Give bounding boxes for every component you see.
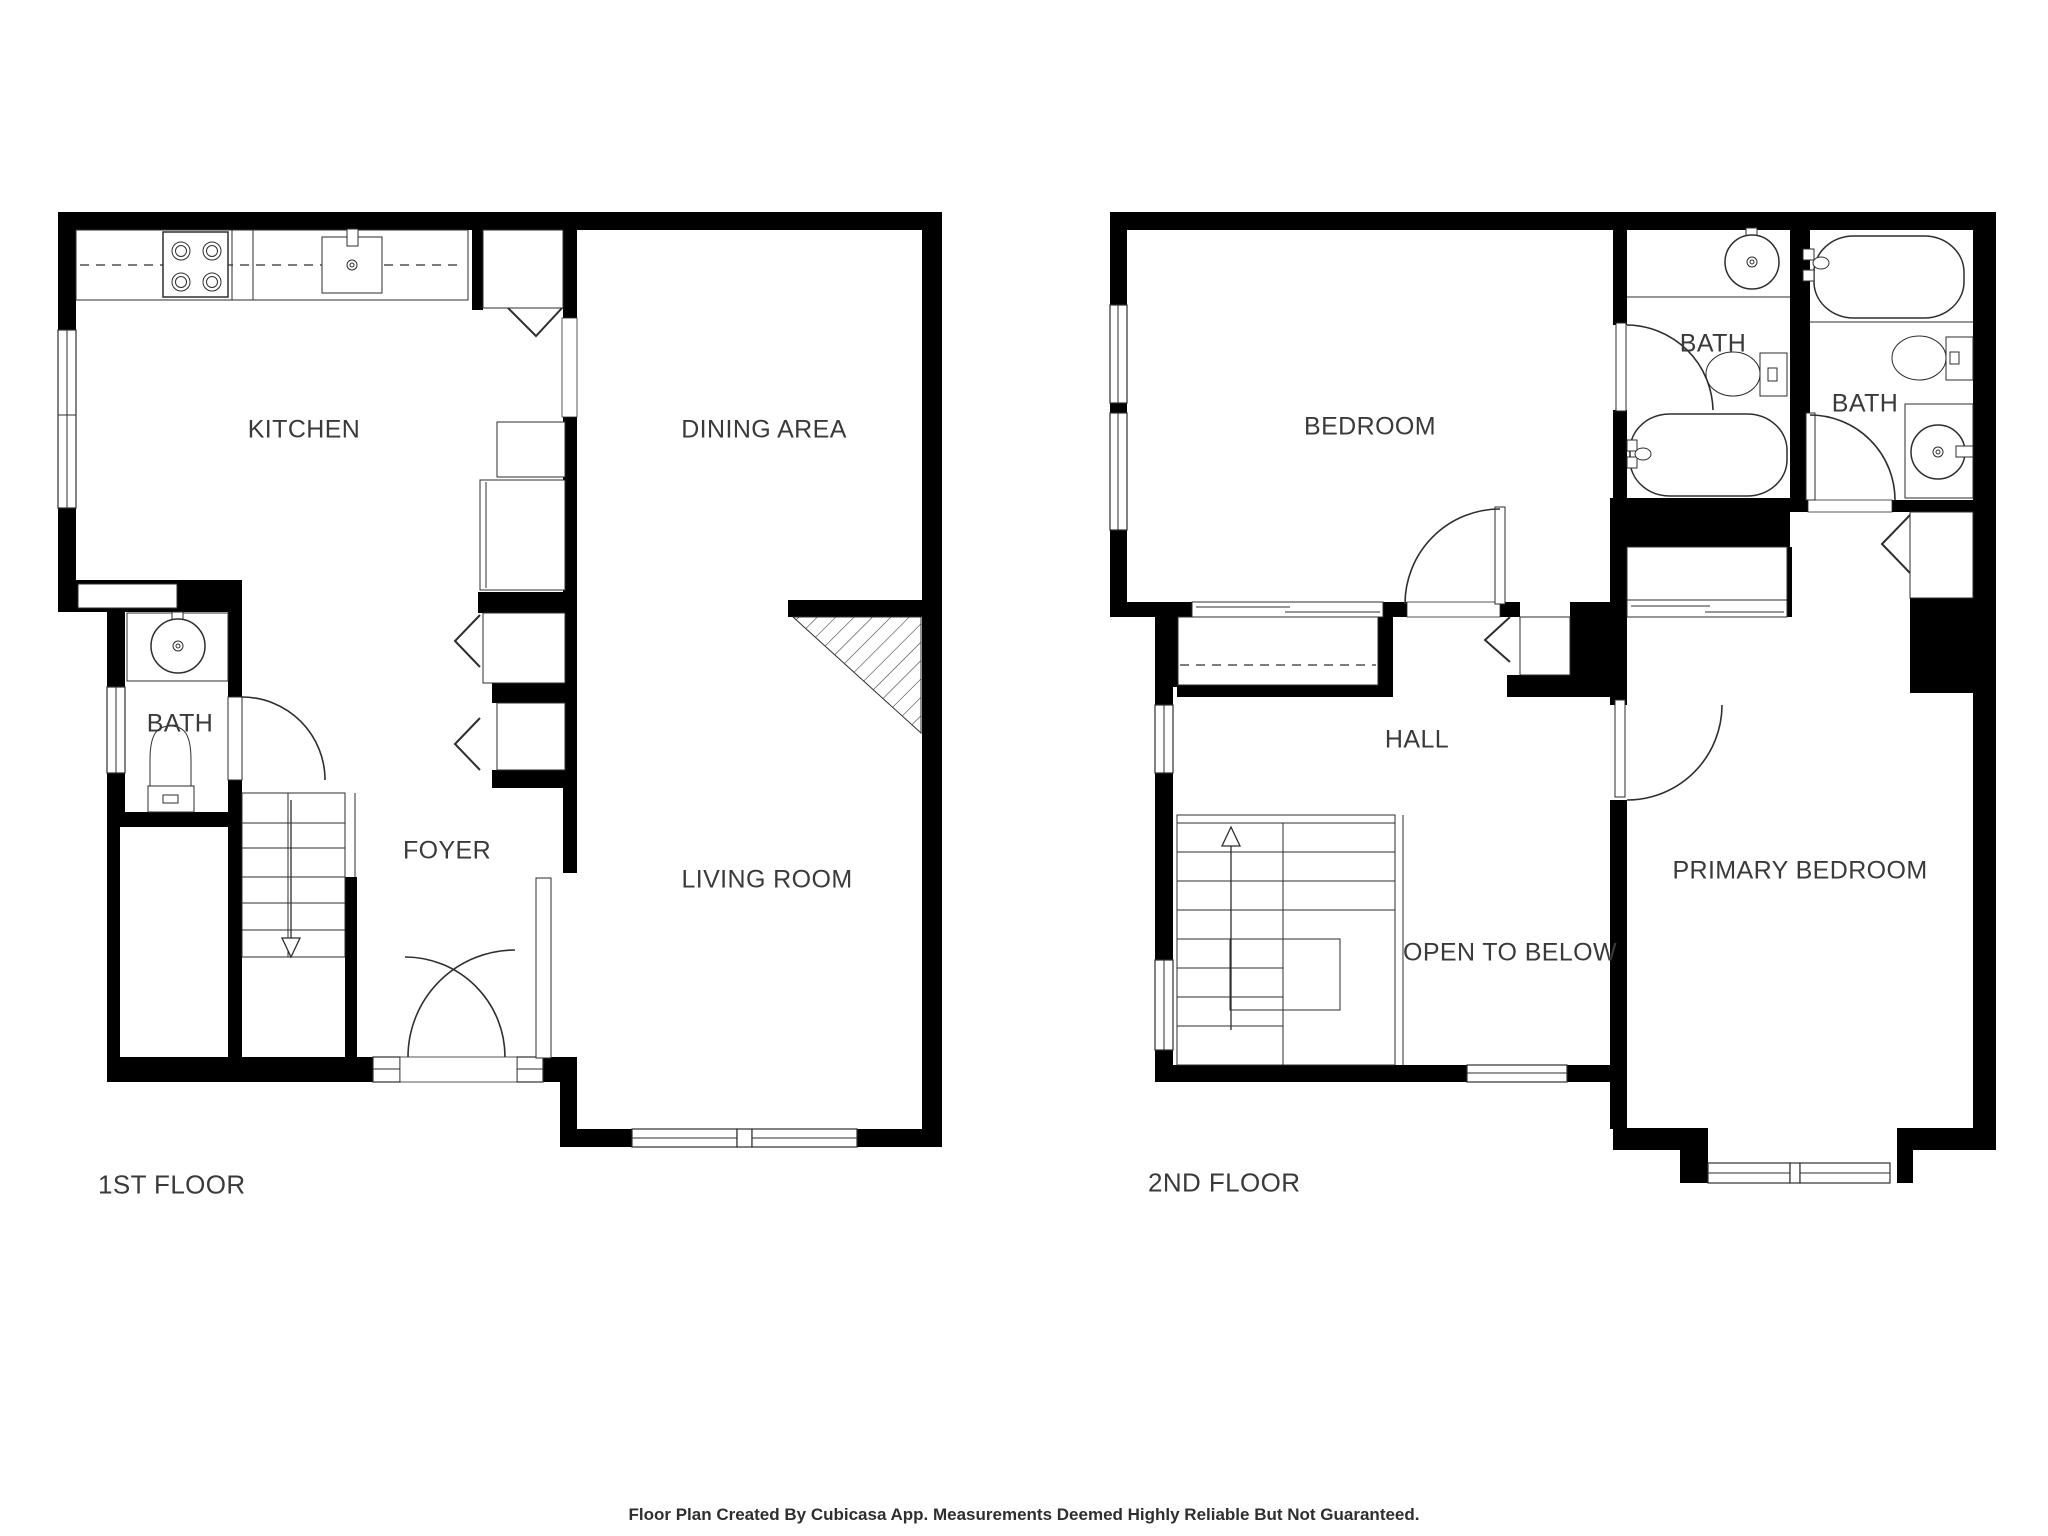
floorplan-page: KITCHEN DINING AREA BATH FOYER LIVING RO… (0, 0, 2048, 1536)
hall-bottom-window (1467, 1065, 1567, 1082)
kitchen-dining-opening (562, 318, 577, 417)
first-floor-plan (58, 212, 942, 1147)
stair-window (1155, 960, 1173, 1050)
room-label-bath-1f: BATH (147, 710, 213, 739)
bathroom-sink-icon (127, 612, 228, 681)
kitchen-counter (76, 230, 468, 300)
entry-door-arcs (400, 878, 551, 1082)
kitchen-sink-icon (322, 229, 382, 293)
bedroom-door-arc (1405, 507, 1505, 617)
floorplan-drawing (0, 0, 2048, 1536)
floor2-title: 2ND FLOOR (1148, 1168, 1300, 1199)
bathtub-icon (1803, 236, 1973, 322)
primary-closet-sliding-door (1627, 547, 1787, 617)
pocket-door (78, 584, 177, 608)
room-label-primary-bedroom: PRIMARY BEDROOM (1672, 857, 1927, 886)
stair-hatch-area (793, 617, 921, 733)
footer-disclaimer: Floor Plan Created By Cubicasa App. Meas… (629, 1505, 1420, 1525)
primary-bay-windows (1708, 1163, 1890, 1183)
hall-window (1155, 705, 1173, 773)
bedroom-windows (1110, 305, 1127, 530)
bath-door-arc (228, 697, 325, 780)
stairs-up (1177, 815, 1403, 1065)
foyer-closet-lower (455, 703, 565, 770)
room-label-living-room: LIVING ROOM (681, 866, 852, 895)
hall-closet-bifold-door (1485, 617, 1570, 675)
stairs-down (242, 793, 355, 957)
entry-sidelight-left (373, 1057, 400, 1082)
bathroom-sink-icon (1627, 228, 1790, 297)
room-label-dining-area: DINING AREA (681, 416, 847, 445)
bathroom-sink-icon (1905, 404, 1973, 498)
foyer-cabinets (480, 422, 565, 590)
toilet-icon (1706, 352, 1787, 396)
bathtub-icon (1627, 414, 1787, 496)
primary-door-arc (1615, 700, 1722, 800)
bath-window (107, 687, 125, 773)
room-label-bath-2f-left: BATH (1680, 330, 1746, 359)
toilet-icon (1892, 336, 1973, 380)
bath2-door-arc (1806, 413, 1895, 512)
room-label-foyer: FOYER (403, 837, 491, 866)
toilet-icon (148, 726, 194, 812)
living-room-windows (632, 1129, 857, 1147)
room-label-kitchen: KITCHEN (248, 416, 361, 445)
pantry-bifold-door (508, 308, 562, 336)
kitchen-window (58, 330, 76, 508)
room-label-bedroom: BEDROOM (1304, 413, 1436, 442)
second-floor-plan (1110, 212, 1996, 1183)
stove-icon (163, 232, 228, 297)
room-label-open-to-below: OPEN TO BELOW (1403, 939, 1617, 968)
bedroom-closet-sliding-door (1178, 602, 1383, 685)
room-label-hall: HALL (1385, 726, 1449, 755)
entry-sidelight-right (517, 1057, 543, 1082)
floor1-title: 1ST FLOOR (98, 1170, 246, 1201)
foyer-closet-upper (455, 613, 565, 683)
primary-vestibule-closet-bifold (1882, 512, 1973, 598)
room-label-bath-2f-right: BATH (1832, 390, 1898, 419)
pantry-closet (483, 230, 563, 308)
